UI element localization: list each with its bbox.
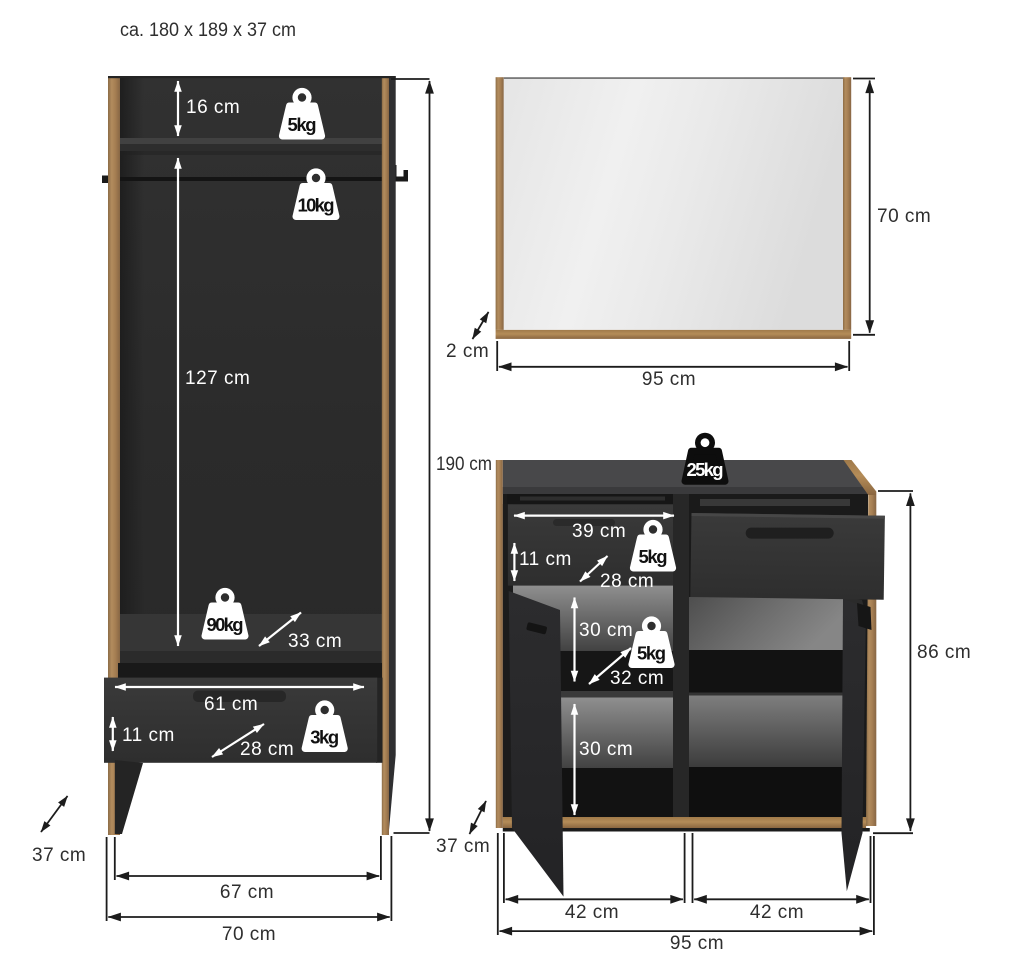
svg-text:30 cm: 30 cm: [579, 739, 633, 760]
svg-text:70 cm: 70 cm: [222, 924, 276, 945]
svg-text:33 cm: 33 cm: [288, 631, 342, 652]
svg-text:42 cm: 42 cm: [565, 902, 619, 923]
svg-text:30 cm: 30 cm: [579, 620, 633, 641]
svg-text:42 cm: 42 cm: [750, 902, 804, 923]
svg-text:ca. 180 x 189 x 37 cm: ca. 180 x 189 x 37 cm: [120, 20, 296, 41]
svg-text:61 cm: 61 cm: [204, 694, 258, 715]
svg-text:5kg: 5kg: [637, 643, 666, 664]
svg-text:32 cm: 32 cm: [610, 668, 664, 689]
svg-text:10kg: 10kg: [298, 195, 335, 216]
svg-text:3kg: 3kg: [310, 727, 339, 748]
svg-text:5kg: 5kg: [639, 546, 668, 567]
svg-text:90kg: 90kg: [207, 614, 244, 635]
svg-text:16 cm: 16 cm: [186, 97, 240, 118]
svg-text:86 cm: 86 cm: [917, 642, 971, 663]
svg-text:95 cm: 95 cm: [642, 369, 696, 390]
svg-text:70 cm: 70 cm: [877, 206, 931, 227]
svg-text:37 cm: 37 cm: [436, 836, 490, 857]
svg-text:28 cm: 28 cm: [240, 739, 294, 760]
svg-text:5kg: 5kg: [288, 114, 317, 135]
svg-text:11 cm: 11 cm: [122, 725, 175, 746]
svg-text:95 cm: 95 cm: [670, 933, 724, 954]
svg-text:25kg: 25kg: [687, 459, 724, 480]
svg-text:11 cm: 11 cm: [519, 549, 572, 570]
svg-text:28 cm: 28 cm: [600, 571, 654, 592]
svg-text:127 cm: 127 cm: [185, 368, 250, 389]
svg-text:2 cm: 2 cm: [446, 341, 489, 362]
svg-text:190 cm: 190 cm: [436, 454, 492, 475]
svg-text:37 cm: 37 cm: [32, 845, 86, 866]
svg-text:39 cm: 39 cm: [572, 521, 626, 542]
svg-text:67 cm: 67 cm: [220, 882, 274, 903]
